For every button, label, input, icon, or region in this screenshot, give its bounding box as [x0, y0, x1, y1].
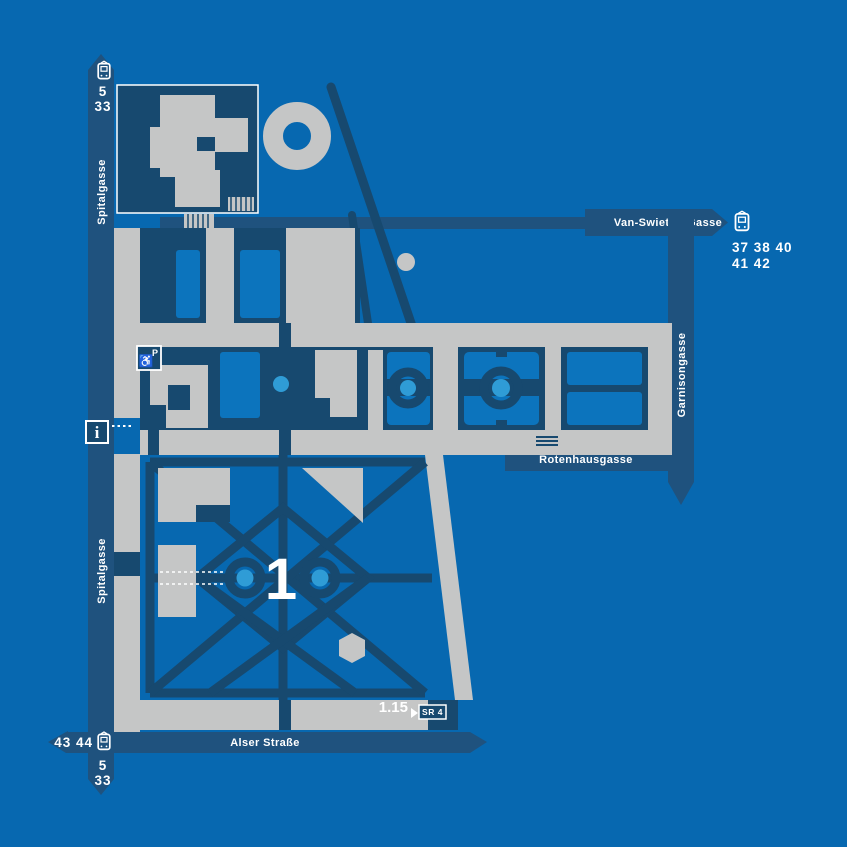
- lawn: [567, 352, 642, 385]
- alser-label: Alser Straße: [230, 737, 300, 749]
- right-wing-divider-2: [545, 347, 561, 430]
- tram-lines-left: 43 44: [54, 735, 93, 750]
- tram-lines-row2: 33: [94, 773, 111, 788]
- building-shape: [160, 95, 215, 177]
- court-path: [496, 420, 507, 430]
- building-strip: [368, 350, 383, 430]
- top-left-complex: [117, 85, 258, 230]
- left-wing: [114, 228, 140, 733]
- fountain: [400, 380, 416, 396]
- building-notch: [197, 137, 215, 151]
- spine-gap: [279, 430, 291, 455]
- small-pavilion: [397, 253, 415, 271]
- wing-gap: [114, 552, 140, 576]
- lawn: [220, 352, 260, 418]
- spine-gap: [279, 323, 291, 347]
- building-shape: [215, 118, 248, 152]
- lawn: [176, 250, 200, 318]
- lawn: [567, 392, 642, 425]
- map-canvas: Van-Swieten-Gasse Garnisongasse Rotenhau…: [0, 0, 847, 847]
- court-path: [496, 347, 507, 357]
- building-shape: [150, 127, 163, 168]
- fountain: [492, 379, 510, 397]
- building-notch: [150, 405, 166, 428]
- fountain: [273, 376, 289, 392]
- garnisongasse-label: Garnisongasse: [676, 333, 688, 418]
- room-code-label: 1.15: [379, 699, 408, 716]
- right-wing-divider-3: [648, 347, 672, 430]
- rotenhausgasse-label: Rotenhausgasse: [539, 454, 633, 466]
- lawn: [240, 250, 280, 318]
- building-strip: [206, 228, 234, 323]
- central-block: [140, 347, 433, 430]
- tram-lines-row2: 33: [94, 99, 111, 114]
- courtyard-number: 1: [265, 547, 297, 612]
- campus-map: Van-Swieten-Gasse Garnisongasse Rotenhau…: [0, 0, 847, 847]
- building-notch: [168, 385, 190, 410]
- tram-lines-row1: 5: [99, 84, 108, 99]
- fountain: [237, 570, 254, 587]
- fountain: [312, 570, 329, 587]
- spitalgasse-label-bottom: Spitalgasse: [96, 538, 108, 604]
- spitalgasse-label-top: Spitalgasse: [96, 159, 108, 225]
- bottom-wing: [140, 700, 458, 730]
- central-spine-wing: [114, 430, 672, 455]
- tram-lines-row2: 41 42: [732, 256, 771, 271]
- building-block: [286, 228, 355, 323]
- parking-icon: P: [152, 348, 158, 358]
- wing-gap: [114, 418, 140, 454]
- info-icon: i: [95, 423, 100, 442]
- building-notch: [196, 505, 230, 522]
- tram-lines-row1: 37 38 40: [732, 240, 793, 255]
- tram-lines-row1: 5: [99, 758, 108, 773]
- spine-gap: [148, 430, 159, 455]
- top-spine-wing: [114, 323, 672, 347]
- mid-top-block: [140, 228, 360, 323]
- stairs-icon: [228, 197, 254, 211]
- room-badge-label: SR 4: [422, 707, 443, 717]
- accessible-parking-marker[interactable]: ♿ P: [137, 346, 161, 370]
- wing-gap: [279, 700, 291, 730]
- stairs-icon: [184, 214, 214, 230]
- right-wing-divider-1: [433, 347, 458, 430]
- building-shape: [175, 170, 220, 207]
